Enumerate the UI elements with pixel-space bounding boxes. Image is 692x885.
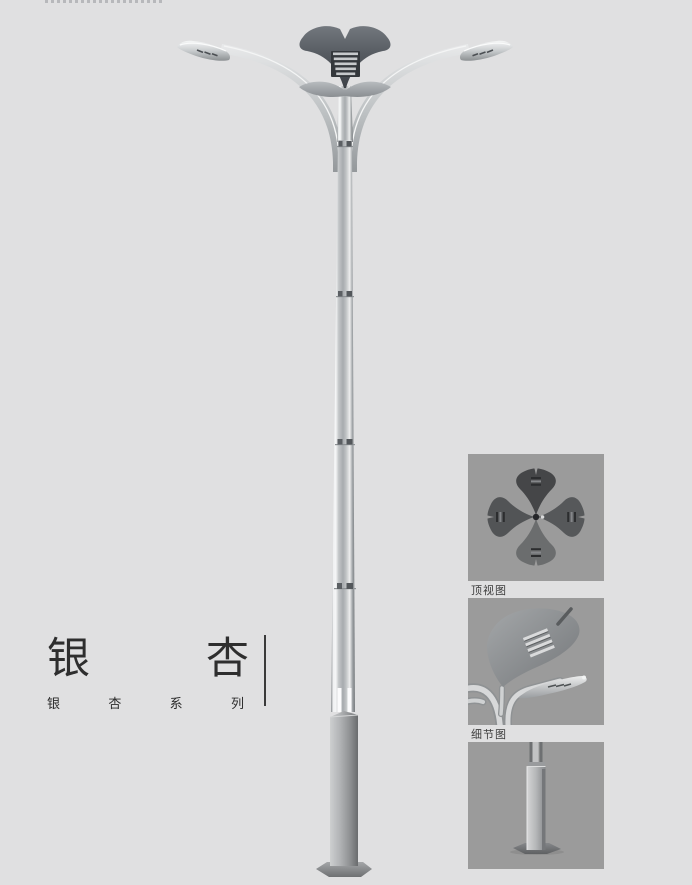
lamp-head-left [177, 41, 230, 61]
base-view-image [468, 742, 604, 869]
title-char-2: 杏 [206, 637, 249, 682]
lamp-arm-left [220, 44, 342, 172]
base-column [330, 711, 358, 866]
subtitle-char-1: 银 [47, 693, 60, 712]
caption-base-view [468, 869, 604, 885]
base-view-column [527, 766, 546, 850]
panel-base-view [468, 742, 604, 885]
detail-panels-column: 顶视图 [468, 454, 604, 885]
detail-view-image [468, 598, 604, 725]
catalog-page: 银 杏 银 杏 系 列 [0, 0, 692, 885]
title-divider-rule [264, 635, 266, 706]
subtitle-char-3: 系 [170, 693, 183, 712]
top-view-hub [533, 514, 539, 520]
subtitle-char-2: 杏 [108, 693, 121, 712]
pole-highlight-left [338, 688, 342, 712]
product-title: 银 杏 [47, 637, 249, 682]
series-subtitle: 银 杏 系 列 [47, 693, 244, 712]
top-view-image [468, 454, 604, 581]
caption-top-view: 顶视图 [468, 581, 604, 598]
pole [331, 140, 355, 712]
pole-highlight-right [348, 688, 352, 712]
lamp-arm-right [348, 41, 513, 172]
subtitle-char-4: 列 [231, 693, 244, 712]
crown-louvers [331, 51, 360, 77]
panel-detail-view: 细节图 [468, 598, 604, 742]
title-char-1: 银 [47, 637, 90, 682]
caption-detail-view: 细节图 [468, 725, 604, 742]
panel-top-view: 顶视图 [468, 454, 604, 598]
title-block: 银 杏 银 杏 系 列 [47, 630, 277, 712]
